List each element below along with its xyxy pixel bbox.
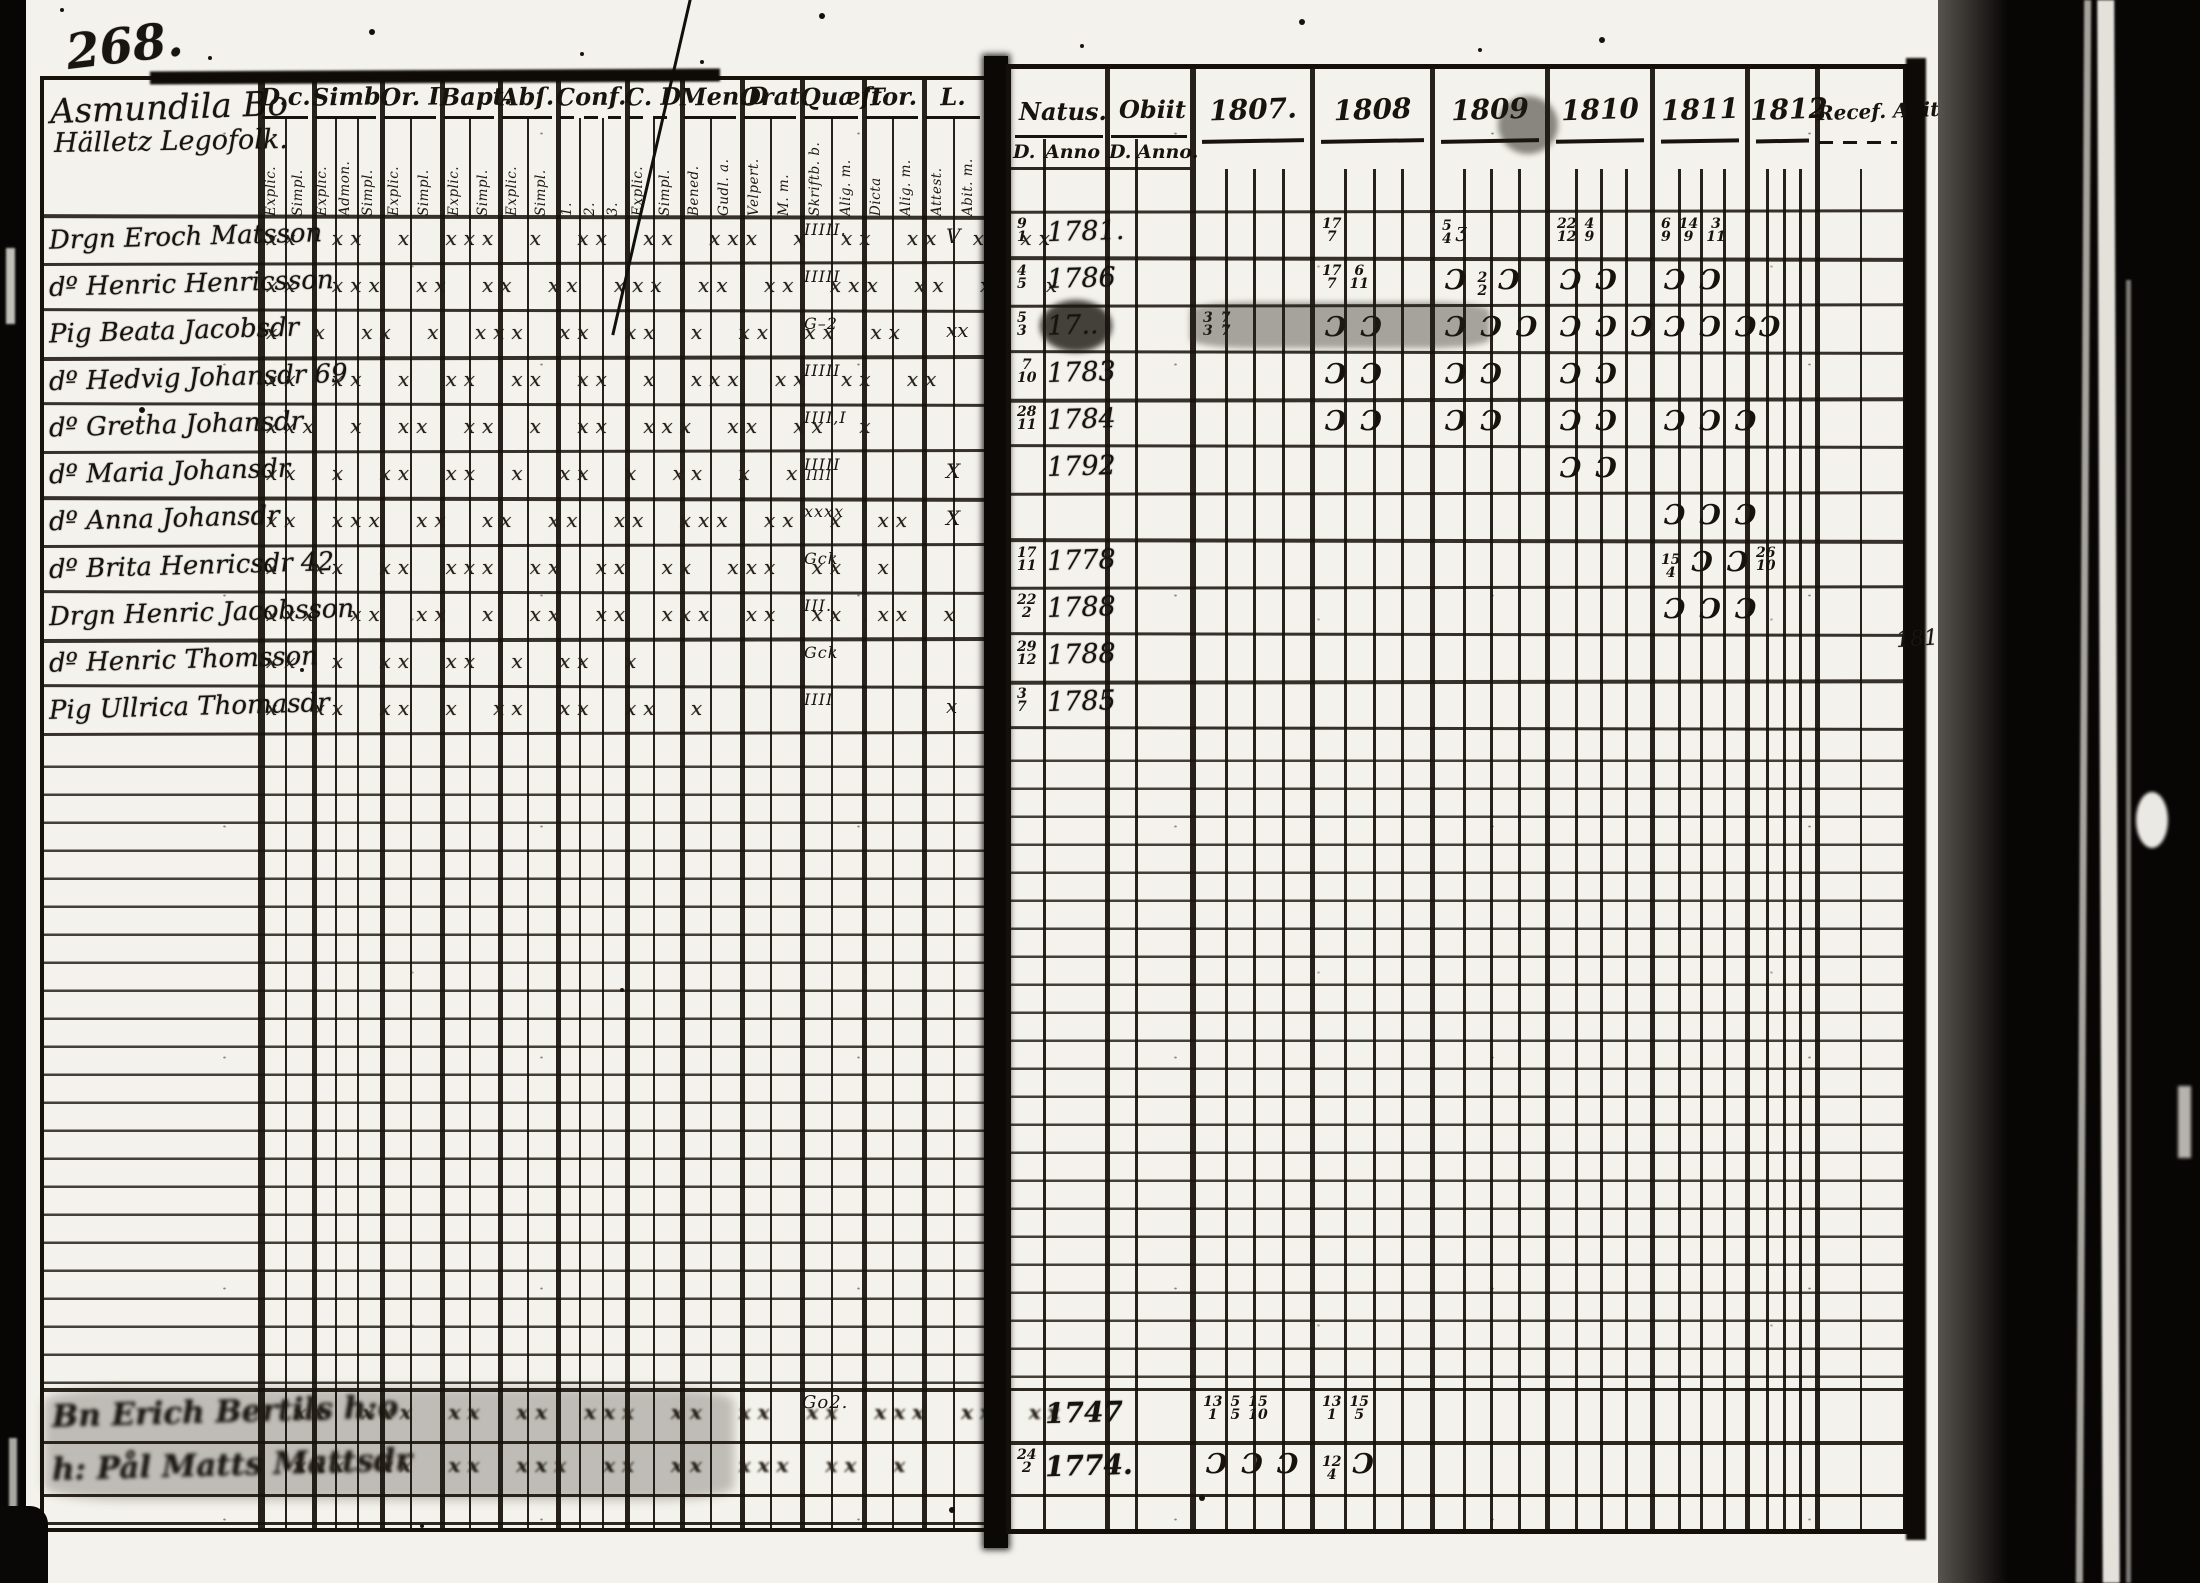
year-marks-1810: ƆƆƆ xyxy=(1553,312,1660,343)
fraction-date-mark: 177 xyxy=(1322,218,1341,244)
row-tail-mark: V xyxy=(946,224,960,248)
natus-day: 1711 xyxy=(1013,547,1040,573)
communion-mark: Ɔ xyxy=(1596,359,1618,390)
empty-ruled-rows xyxy=(44,740,984,1388)
year-marks-1811: ƆƆƆ xyxy=(1657,406,1764,437)
white-dash-right-bottom xyxy=(2178,1086,2191,1158)
natus-day: 710 xyxy=(1013,359,1040,385)
bottom-quaest-tally: Go2. xyxy=(802,1392,848,1413)
row-marks: xx xxx xx xx xx xxx xx xx xxx xx xx x xyxy=(266,273,1064,297)
row-line xyxy=(44,543,984,547)
row-line xyxy=(1011,491,1903,495)
year-marks-1809: 54ʒ xyxy=(1438,218,1467,245)
fraction-date-mark: 55 xyxy=(1230,1396,1240,1422)
recess-header: Recef. Abit. xyxy=(1817,97,1947,126)
row-marks: xxx xx xx x xx xx xxx xx xx xx x xyxy=(266,602,962,626)
obiit-header: Obiit xyxy=(1119,95,1186,124)
row-line xyxy=(1011,726,1903,730)
bottom-left-black-blob xyxy=(0,1506,48,1583)
fraction-date-mark: 2912 xyxy=(1017,641,1036,667)
quaest-extra-tally: IIII xyxy=(806,468,832,484)
year-marks-1812: Ɔ xyxy=(1752,312,1788,343)
year-marks-1808: ƆƆ xyxy=(1318,359,1389,390)
communion-mark: Ɔ xyxy=(1498,265,1520,296)
natus-year: 1788 xyxy=(1047,638,1117,671)
communion-mark: Ɔ xyxy=(1700,406,1722,437)
sub-column-label: Explic. xyxy=(263,124,279,216)
column-header-orat: Orat. xyxy=(740,81,800,111)
column-header-dc: D.c. xyxy=(258,82,312,112)
sub-column-label: Abit. m. xyxy=(960,124,976,216)
fraction-date-mark: 222 xyxy=(1017,594,1036,620)
natus-underline xyxy=(1015,135,1103,138)
communion-mark: Ɔ xyxy=(1325,406,1347,437)
white-streak-3 xyxy=(2126,280,2131,1583)
row-line xyxy=(1011,585,1903,589)
sub-column-label: Dicta xyxy=(868,124,884,216)
film-speckles xyxy=(60,8,64,12)
sub-column-label: M. m. xyxy=(776,124,792,216)
row-marks: x xx xx x xx xx xx x xyxy=(266,696,709,720)
natus-year: 1784 xyxy=(1047,403,1117,436)
column-header-underline xyxy=(316,116,376,119)
quaest-tally: xxxx xyxy=(804,502,844,521)
fraction-date-mark: 311 xyxy=(1706,218,1725,244)
fraction-date-mark: 91 xyxy=(1017,218,1027,244)
row-marks: xx xx x xx xx xx x xxx xx xx xx xyxy=(266,367,943,391)
fraction-date-mark: 155 xyxy=(1349,1396,1368,1422)
sub-column-label: Gudl. a. xyxy=(716,124,732,216)
row-marks: x xx xx xxx xx xx xx xxx xx x xyxy=(266,555,896,579)
obiit-underline xyxy=(1111,135,1187,138)
bottom-row-line xyxy=(1011,1494,1903,1497)
row-line xyxy=(44,261,984,265)
sub-column-label: Explic. xyxy=(504,124,520,216)
row-marks: xx x xx xx x xx x xyxy=(266,649,643,673)
fraction-date-mark: 2212 xyxy=(1557,218,1576,244)
sub-column-label: Explic. xyxy=(314,124,330,216)
year-marks-1810: 221249 xyxy=(1553,218,1598,244)
communion-mark: Ɔ xyxy=(1759,312,1781,343)
year-underline xyxy=(1661,138,1739,143)
row-tail-mark: X xyxy=(946,459,960,483)
communion-mark: Ɔ xyxy=(1727,547,1749,578)
year-underline xyxy=(1202,138,1304,144)
natus-sub-anno: Anno xyxy=(1045,141,1100,163)
communion-mark: Ɔ xyxy=(1596,406,1618,437)
row-tail-mark: x xyxy=(946,694,957,718)
column-header-underline xyxy=(560,116,621,119)
natus-year: 1785 xyxy=(1047,685,1117,718)
fraction-date-mark: 124 xyxy=(1322,1456,1341,1482)
row-line xyxy=(44,355,984,361)
communion-mark: Ɔ xyxy=(1700,312,1722,343)
column-header-l: L. xyxy=(922,81,984,111)
communion-mark: Ɔ xyxy=(1445,359,1467,390)
fraction-date-mark: 710 xyxy=(1017,359,1036,385)
communion-mark: Ɔ xyxy=(1445,265,1467,296)
fraction-date-mark: 49 xyxy=(1584,218,1594,244)
year-underline xyxy=(1556,138,1644,144)
row-marks: xxx x xx xx x xx xxx xx xx x xyxy=(266,414,878,438)
ink-smudge-row3 xyxy=(1190,302,1490,348)
communion-mark: Ɔ xyxy=(1664,265,1686,296)
year-marks-1811: 69149311 xyxy=(1657,218,1730,244)
ink-smudge-header xyxy=(1498,96,1558,154)
fraction-date-mark: 131 xyxy=(1322,1396,1341,1422)
fraction-date-mark: 45 xyxy=(1017,265,1027,291)
communion-mark: Ɔ xyxy=(1560,312,1582,343)
bottom-year-marks-1808: 124Ɔ xyxy=(1318,1449,1381,1481)
communion-mark: Ɔ xyxy=(1735,500,1757,531)
left-edge-white-streak-2 xyxy=(9,1438,17,1510)
year-marks-1811: ƆƆƆ xyxy=(1657,594,1764,625)
ink-smudge-bottom-left xyxy=(44,1388,734,1500)
row-line xyxy=(1011,350,1903,354)
fraction-date-mark: 54 xyxy=(1442,220,1452,246)
year-marks-1809: Ɔ22Ɔ xyxy=(1438,265,1527,297)
communion-mark: Ɔ xyxy=(1206,1449,1228,1480)
year-underline xyxy=(1321,138,1424,144)
year-header-1812: 1812 xyxy=(1749,92,1815,127)
row-line xyxy=(1011,397,1903,403)
quaest-tally: IIIII xyxy=(804,267,841,286)
year-header-1811: 1811 xyxy=(1654,91,1745,127)
sub-column-label: Simpl. xyxy=(416,124,432,216)
row-tail-mark: xx xyxy=(946,318,969,342)
row-line xyxy=(44,308,984,312)
natus-year: 1788 xyxy=(1047,591,1117,624)
year-header-1808: 1808 xyxy=(1314,91,1430,128)
row-line xyxy=(1011,256,1903,262)
fraction-date-mark: 69 xyxy=(1661,218,1671,244)
sub-column-label: 2. xyxy=(582,124,598,216)
year-marks-1809: ƆƆ xyxy=(1438,359,1509,390)
year-marks-1811: ƆƆƆ xyxy=(1657,312,1764,343)
communion-mark: Ɔ xyxy=(1325,359,1347,390)
fraction-date-mark: 2610 xyxy=(1756,547,1775,573)
year-header-1810: 1810 xyxy=(1549,91,1650,127)
row-line xyxy=(44,496,984,502)
year-marks-1811: ƆƆ xyxy=(1657,265,1728,296)
communion-mark: Ɔ xyxy=(1596,265,1618,296)
natus-header: Natus. xyxy=(1019,97,1107,126)
year-marks-1809: ƆƆ xyxy=(1438,406,1509,437)
sub-column-label: 3. xyxy=(605,124,621,216)
bottom-year-marks-1808: 131155 xyxy=(1318,1396,1373,1422)
natus-sub-d: D. xyxy=(1013,141,1035,163)
communion-mark: Ɔ xyxy=(1361,359,1383,390)
row-line xyxy=(1011,209,1903,213)
row-marks: xx xx x xxx x xx xx xxx x xx xx x xx xyxy=(266,226,1057,250)
obiit-sub-d: D. xyxy=(1109,141,1131,163)
communion-mark: Ɔ xyxy=(1664,594,1686,625)
year-marks-1808: ƆƆ xyxy=(1318,406,1389,437)
row-line xyxy=(44,731,984,735)
column-header-mend: Men.D xyxy=(680,81,740,111)
row-line xyxy=(1011,632,1903,636)
bottom-year-marks-1807: ƆƆƆ xyxy=(1199,1449,1306,1480)
column-header-ab: Abſ. xyxy=(498,81,556,111)
quaest-tally: IIIII. xyxy=(804,220,847,239)
sub-column-label: Admon. xyxy=(337,124,353,216)
communion-mark: Ɔ xyxy=(1691,547,1713,578)
row-line xyxy=(1011,538,1903,544)
sub-column-label: Simpl. xyxy=(475,124,491,216)
bottom-row-line xyxy=(1011,1388,1903,1391)
column-header-cd: C. D xyxy=(625,82,680,112)
bottom-row-line xyxy=(1011,1441,1903,1445)
row-line xyxy=(44,684,984,688)
bottom-row-line xyxy=(44,1522,984,1525)
sub-column-label: Simpl. xyxy=(290,124,306,216)
communion-mark: Ɔ xyxy=(1664,312,1686,343)
communion-mark: Ɔ xyxy=(1560,453,1582,484)
recess-underline xyxy=(1819,141,1897,144)
fraction-date-mark: 37 xyxy=(1017,688,1027,714)
fraction-date-mark: 22 xyxy=(1478,272,1488,298)
year-marks-1811: ƆƆƆ xyxy=(1657,500,1764,531)
natus-day: 2912 xyxy=(1013,641,1040,667)
communion-mark: Ɔ xyxy=(1560,359,1582,390)
fraction-date-mark: 149 xyxy=(1679,218,1698,244)
communion-mark: Ɔ xyxy=(1516,312,1538,343)
communion-mark: Ɔ xyxy=(1664,500,1686,531)
right-zone-grain xyxy=(1938,0,2008,1583)
natus-day: 222 xyxy=(1013,594,1040,620)
year-marks-1810: ƆƆ xyxy=(1553,359,1624,390)
quaest-tally: IIIII xyxy=(804,361,841,380)
communion-mark: Ɔ xyxy=(1560,265,1582,296)
year-marks-1811: 154ƆƆ xyxy=(1657,547,1755,579)
column-header-tor: Tor. xyxy=(862,81,922,111)
bottom-natus-year: 1774. xyxy=(1045,1448,1134,1483)
column-header-bapt: Bapt. xyxy=(440,81,498,111)
fraction-date-mark: 154 xyxy=(1661,554,1680,580)
sub-column-label: Simpl. xyxy=(360,124,376,216)
left-page-table: D.c.Explic.Simpl.Simb.Explic.Admon.Simpl… xyxy=(40,76,988,1532)
row-line xyxy=(1011,679,1903,685)
sub-column-label: Bened. xyxy=(686,124,702,216)
fraction-date-mark: 1510 xyxy=(1248,1396,1267,1422)
communion-mark: Ɔ xyxy=(1352,1449,1374,1480)
natus-day: 37 xyxy=(1013,688,1031,714)
natus-year: 1786 xyxy=(1047,262,1117,295)
ink-blot-natus xyxy=(1040,300,1112,352)
right-page-edge-band xyxy=(1906,58,1926,1540)
row-line xyxy=(44,637,984,643)
column-header-qut: Quæſt xyxy=(800,81,862,111)
sub-column-label: Velpert. xyxy=(746,124,762,216)
year-underline xyxy=(1756,139,1809,144)
year-marks-1810: ƆƆ xyxy=(1553,265,1624,296)
column-header-ori: Or. I xyxy=(380,81,440,111)
sub-column-label: Simpl. xyxy=(533,124,549,216)
row-line xyxy=(44,449,984,453)
communion-mark: Ɔ xyxy=(1664,406,1686,437)
fraction-date-mark: 177 xyxy=(1322,265,1341,291)
row-marks: xx x xx xx x xx x xx x x xyxy=(266,461,804,485)
year-marks-1810: ƆƆ xyxy=(1553,406,1624,437)
row-tail-mark: X xyxy=(946,506,960,530)
fraction-date-mark: 53 xyxy=(1017,312,1027,338)
sub-column-label: Attest. xyxy=(929,124,945,216)
sub-column-label: 1. xyxy=(559,124,575,216)
bottom-natus-year: 1747 xyxy=(1045,1395,1124,1430)
white-blob-right xyxy=(2136,792,2168,848)
row-line xyxy=(44,214,984,220)
natus-year: 1778 xyxy=(1047,544,1117,577)
sub-column-label: Alig. m. xyxy=(898,124,914,216)
fraction-date-mark: 2811 xyxy=(1017,406,1036,432)
sub-column-label: Explic. xyxy=(386,124,402,216)
communion-mark: Ɔ xyxy=(1631,312,1653,343)
quaest-tally: Gck xyxy=(804,549,838,568)
natus-day: 91 xyxy=(1013,218,1031,244)
communion-mark: Ɔ xyxy=(1560,406,1582,437)
column-header-simb: Simb. xyxy=(312,81,380,111)
quaest-tally: IIII xyxy=(804,690,833,709)
natus-year: 1781. xyxy=(1047,215,1125,248)
natus-year: 1792 xyxy=(1047,450,1117,483)
communion-mark: Ɔ xyxy=(1700,594,1722,625)
communion-mark: Ɔ xyxy=(1700,500,1722,531)
microfilm-scan: 268. Asmundila Bo Hälletz Legofolk. D.c.… xyxy=(0,0,2200,1583)
row-line xyxy=(44,402,984,406)
natus-day: 45 xyxy=(1013,265,1031,291)
row-line xyxy=(44,590,984,594)
right-page-table: Natus.D.AnnoObiitD.Anno.1807.18081809181… xyxy=(1006,64,1908,1534)
column-header-conf: Conf. xyxy=(556,81,625,111)
sub-column-label: Skriftb. b. xyxy=(807,124,823,216)
row-name: dº Maria Johansdr xyxy=(49,454,291,491)
year-header-1807: 1807. xyxy=(1195,91,1310,128)
page-gutter xyxy=(984,56,1008,1548)
communion-mark: Ɔ xyxy=(1445,406,1467,437)
empty-ruled-rows xyxy=(1011,734,1903,1384)
quaest-tally: G–2 xyxy=(804,314,838,333)
row-line xyxy=(1011,444,1903,448)
natus-year: 1783 xyxy=(1047,356,1117,389)
fraction-date-mark: 131 xyxy=(1203,1396,1222,1422)
communion-mark: Ɔ xyxy=(1596,453,1618,484)
year-marks-1808: 177611 xyxy=(1318,265,1373,291)
bottom-year-marks-1807: 131551510 xyxy=(1199,1396,1272,1422)
communion-mark: Ɔ xyxy=(1735,406,1757,437)
row-name: dº Anna Johansdr xyxy=(49,501,280,537)
communion-mark: Ɔ xyxy=(1277,1449,1299,1480)
quaest-tally: Gck xyxy=(804,643,838,662)
communion-mark: Ɔ xyxy=(1481,359,1503,390)
header-sub-line xyxy=(1011,167,1190,170)
quaest-tally: III. xyxy=(804,596,832,615)
fraction-date-mark: 1711 xyxy=(1017,547,1036,573)
fraction-date-mark: 242 xyxy=(1017,1449,1036,1475)
bottom-natus-day: 242 xyxy=(1013,1449,1040,1475)
communion-mark: Ɔ xyxy=(1361,406,1383,437)
communion-mark: Ɔ xyxy=(1735,594,1757,625)
hand-mark: ʒ xyxy=(1456,218,1467,242)
fraction-date-mark: 611 xyxy=(1349,265,1368,291)
communion-mark: Ɔ xyxy=(1700,265,1722,296)
year-marks-1812: 2610 xyxy=(1752,547,1779,573)
year-marks-1810: ƆƆ xyxy=(1553,453,1624,484)
year-marks-1808: 177 xyxy=(1318,218,1345,244)
communion-mark: Ɔ xyxy=(1481,406,1503,437)
communion-mark: Ɔ xyxy=(1242,1449,1264,1480)
natus-day: 53 xyxy=(1013,312,1031,338)
quaest-tally: IIII,I xyxy=(804,408,847,427)
sub-column-label: Explic. xyxy=(446,124,462,216)
film-left-black-edge xyxy=(0,0,26,1583)
communion-mark: Ɔ xyxy=(1596,312,1618,343)
natus-day: 2811 xyxy=(1013,406,1040,432)
sub-column-label: Alig. m. xyxy=(838,124,854,216)
left-edge-white-streak xyxy=(6,248,15,324)
